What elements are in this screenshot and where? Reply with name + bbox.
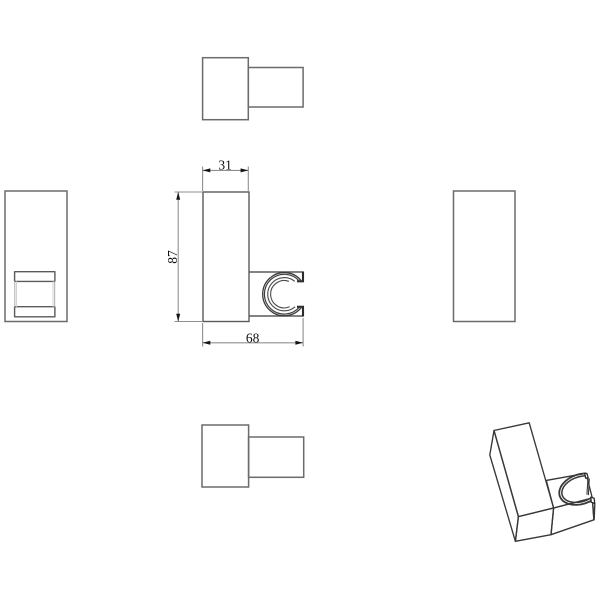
- svg-text:31: 31: [218, 158, 232, 173]
- svg-text:68: 68: [246, 331, 260, 346]
- svg-text:87: 87: [165, 250, 180, 264]
